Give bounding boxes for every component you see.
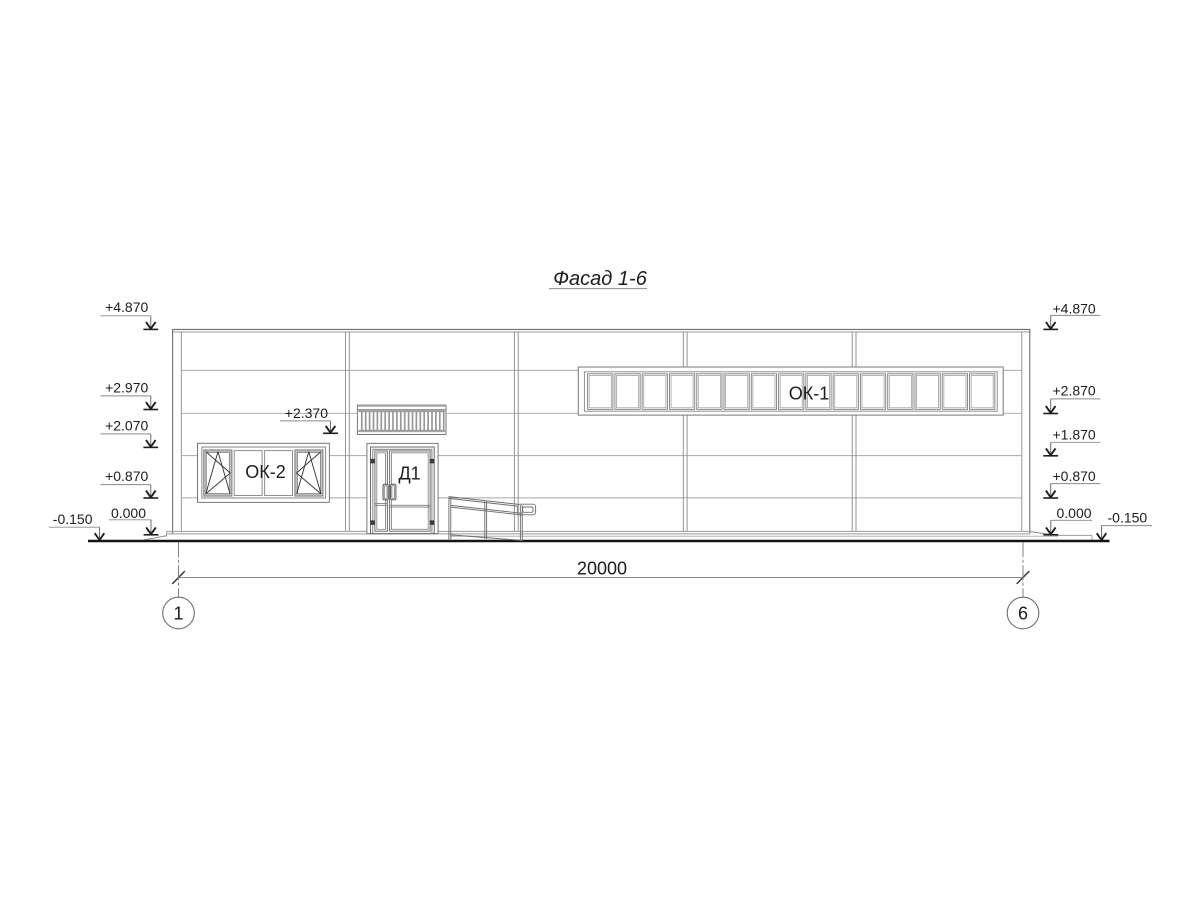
svg-text:+2.870: +2.870	[1053, 383, 1096, 399]
svg-text:+2.070: +2.070	[105, 418, 148, 434]
svg-text:-0.150: -0.150	[1108, 510, 1148, 526]
svg-text:1: 1	[173, 604, 183, 624]
svg-text:+0.870: +0.870	[1053, 468, 1096, 484]
svg-text:Д1: Д1	[398, 464, 420, 484]
svg-text:+2.370: +2.370	[285, 405, 328, 421]
svg-text:+0.870: +0.870	[105, 468, 148, 484]
svg-text:ОК-2: ОК-2	[245, 462, 286, 482]
svg-text:+4.870: +4.870	[105, 299, 148, 315]
svg-text:6: 6	[1018, 604, 1028, 624]
svg-text:+4.870: +4.870	[1053, 301, 1096, 317]
svg-text:Фасад 1-6: Фасад 1-6	[553, 268, 648, 290]
svg-text:20000: 20000	[577, 559, 627, 579]
svg-text:-0.150: -0.150	[53, 511, 93, 527]
svg-text:+1.870: +1.870	[1053, 426, 1096, 442]
svg-text:0.000: 0.000	[111, 505, 146, 521]
svg-text:0.000: 0.000	[1057, 505, 1092, 521]
svg-text:+2.970: +2.970	[105, 380, 148, 396]
svg-text:ОК-1: ОК-1	[789, 383, 830, 403]
